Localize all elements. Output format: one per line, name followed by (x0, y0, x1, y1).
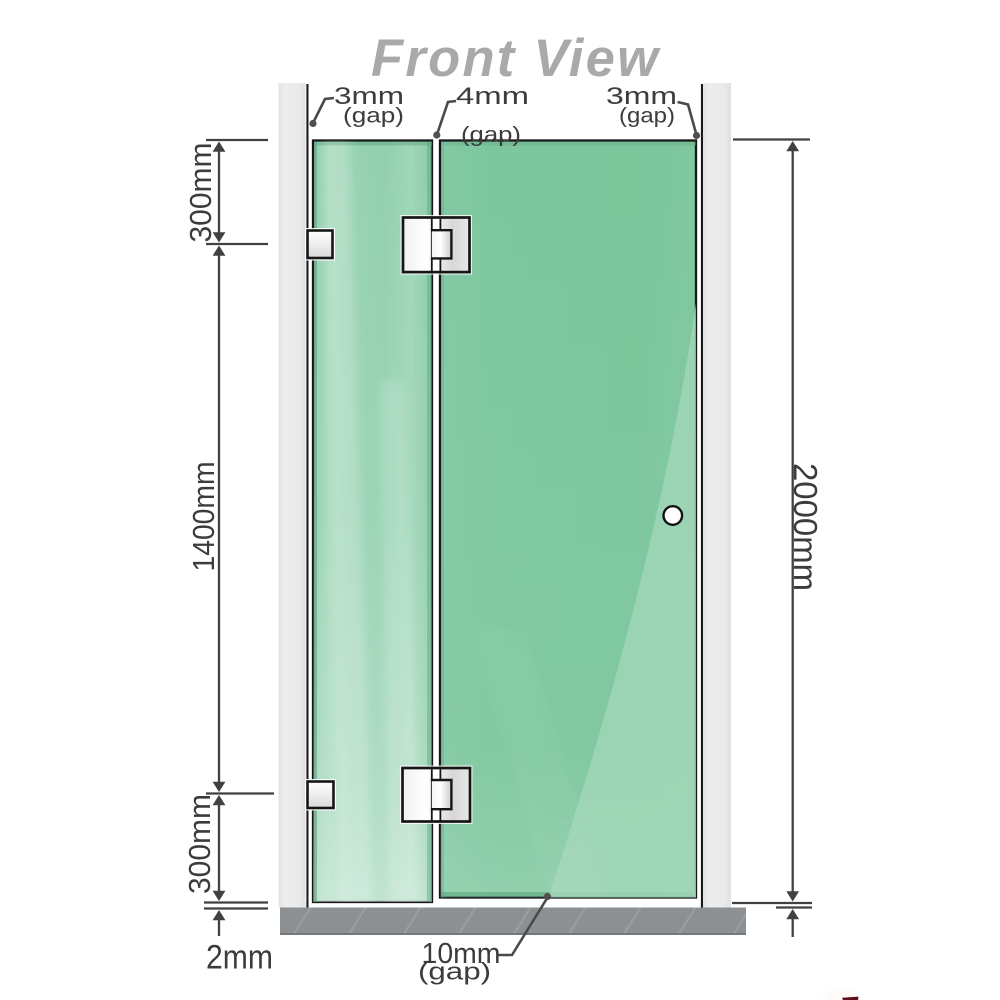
svg-text:(gap): (gap) (343, 104, 404, 128)
svg-text:1400mm: 1400mm (186, 462, 221, 572)
svg-text:300mm: 300mm (183, 143, 218, 243)
svg-text:2000mm: 2000mm (787, 463, 824, 591)
svg-text:2mm: 2mm (206, 939, 273, 977)
svg-text:(gap): (gap) (461, 123, 521, 147)
svg-text:(gap): (gap) (418, 959, 491, 986)
svg-text:4mm: 4mm (456, 83, 529, 110)
svg-text:Front View: Front View (371, 29, 661, 88)
svg-text:(gap): (gap) (619, 104, 675, 128)
svg-text:300mm: 300mm (182, 794, 217, 894)
